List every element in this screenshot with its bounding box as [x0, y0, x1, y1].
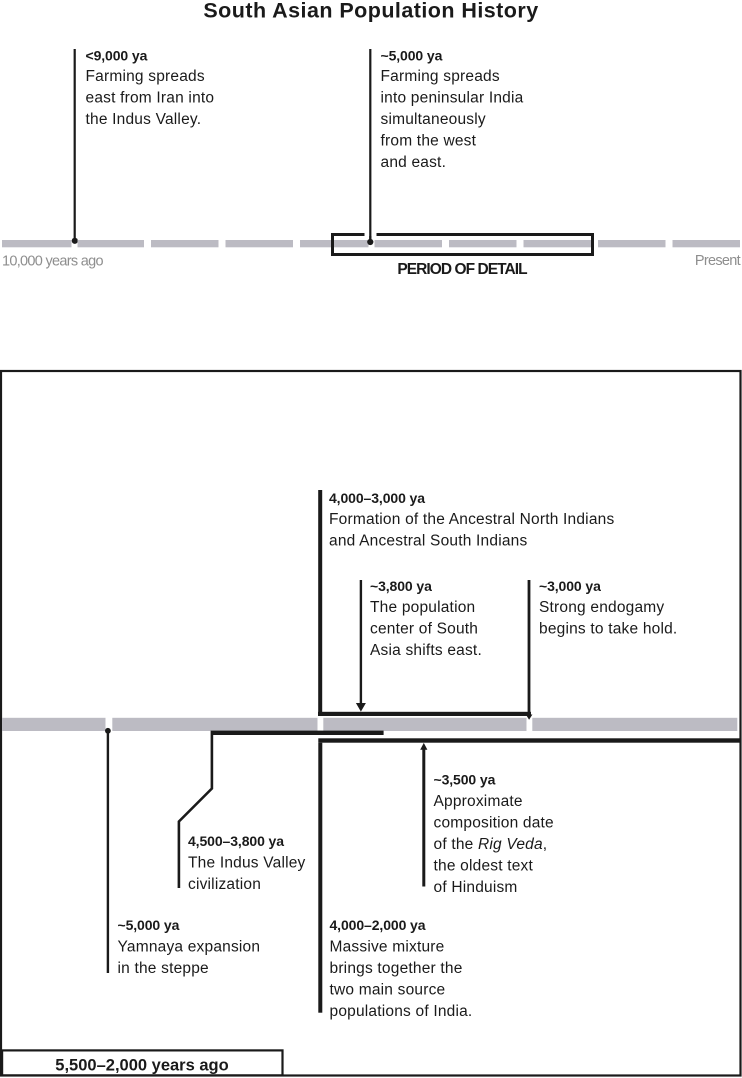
svg-text:<9,000 ya: <9,000 ya: [86, 48, 148, 64]
svg-text:4,000–2,000 ya: 4,000–2,000 ya: [330, 917, 426, 933]
svg-text:Farming spreads: Farming spreads: [381, 68, 500, 85]
svg-text:~3,800 ya: ~3,800 ya: [370, 578, 432, 594]
svg-text:Formation of the Ancestral Nor: Formation of the Ancestral North Indians: [329, 511, 614, 528]
svg-text:Massive mixture: Massive mixture: [330, 939, 445, 956]
svg-text:composition date: composition date: [434, 815, 554, 832]
svg-text:brings together the: brings together the: [330, 960, 463, 977]
svg-text:5,500–2,000 years ago: 5,500–2,000 years ago: [55, 1057, 228, 1075]
svg-text:Yamnaya expansion: Yamnaya expansion: [118, 939, 261, 956]
svg-text:two main source: two main source: [330, 982, 446, 999]
svg-text:10,000 years ago: 10,000 years ago: [2, 254, 103, 270]
svg-text:begins to take hold.: begins to take hold.: [539, 621, 677, 638]
svg-text:Farming spreads: Farming spreads: [86, 68, 205, 85]
svg-text:Asia shifts east.: Asia shifts east.: [370, 642, 482, 659]
svg-text:populations of India.: populations of India.: [330, 1003, 473, 1020]
svg-text:~5,000 ya: ~5,000 ya: [381, 48, 443, 64]
svg-text:PERIOD OF DETAIL: PERIOD OF DETAIL: [397, 261, 527, 278]
svg-text:the oldest text: the oldest text: [434, 858, 534, 875]
svg-text:of the Rig Veda,: of the Rig Veda,: [434, 836, 548, 853]
svg-text:Present: Present: [695, 253, 741, 269]
svg-text:east from Iran into: east from Iran into: [86, 90, 215, 107]
svg-text:The Indus Valley: The Indus Valley: [188, 855, 306, 872]
svg-text:South Asian Population History: South Asian Population History: [203, 0, 538, 22]
svg-text:of Hinduism: of Hinduism: [434, 879, 518, 896]
svg-text:simultaneously: simultaneously: [381, 111, 486, 128]
svg-text:Strong endogamy: Strong endogamy: [539, 599, 664, 616]
svg-text:the Indus Valley.: the Indus Valley.: [86, 111, 202, 128]
svg-text:from the west: from the west: [381, 133, 477, 150]
svg-text:center of South: center of South: [370, 621, 478, 638]
svg-text:in the steppe: in the steppe: [118, 960, 209, 977]
svg-text:into peninsular India: into peninsular India: [381, 90, 524, 107]
svg-text:~3,500 ya: ~3,500 ya: [434, 772, 496, 788]
svg-text:civilization: civilization: [188, 876, 261, 893]
svg-text:Approximate: Approximate: [434, 793, 523, 810]
svg-text:~3,000 ya: ~3,000 ya: [539, 578, 601, 594]
svg-text:~5,000 ya: ~5,000 ya: [118, 917, 180, 933]
svg-text:and Ancestral South Indians: and Ancestral South Indians: [329, 533, 527, 550]
svg-text:The population: The population: [370, 599, 475, 616]
svg-text:4,500–3,800 ya: 4,500–3,800 ya: [188, 833, 284, 849]
svg-text:4,000–3,000 ya: 4,000–3,000 ya: [329, 490, 425, 506]
svg-text:and east.: and east.: [381, 154, 447, 171]
